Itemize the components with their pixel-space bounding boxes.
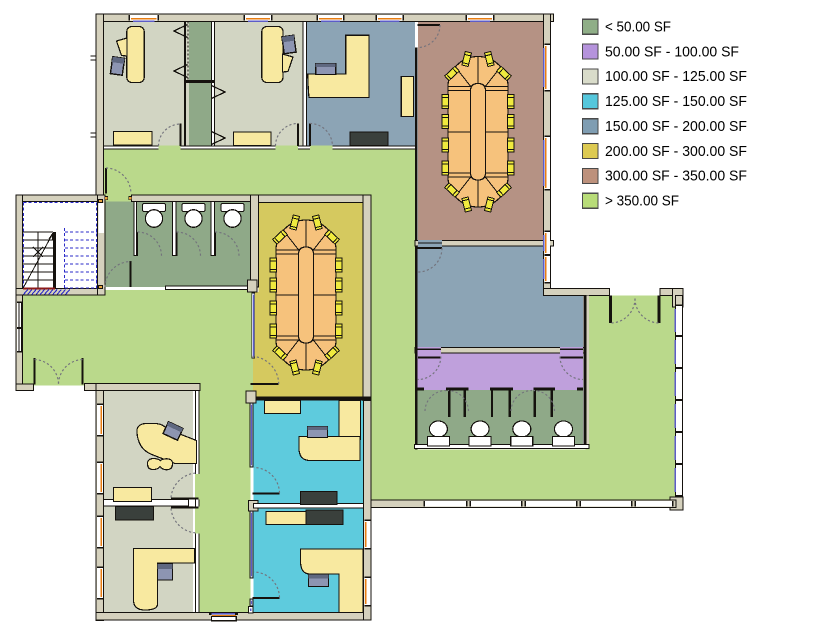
svg-text:150.00 SF - 200.00 SF: 150.00 SF - 200.00 SF (605, 118, 747, 135)
svg-text:125.00 SF - 150.00 SF: 125.00 SF - 150.00 SF (605, 93, 747, 110)
svg-text:50.00 SF - 100.00 SF: 50.00 SF - 100.00 SF (605, 43, 739, 60)
svg-text:100.00 SF - 125.00 SF: 100.00 SF - 125.00 SF (605, 68, 747, 85)
svg-text:< 50.00 SF: < 50.00 SF (605, 19, 671, 36)
svg-text:200.00 SF - 300.00 SF: 200.00 SF - 300.00 SF (605, 143, 747, 160)
svg-text:300.00 SF - 350.00 SF: 300.00 SF - 350.00 SF (605, 168, 747, 185)
svg-text:> 350.00 SF: > 350.00 SF (605, 193, 679, 210)
